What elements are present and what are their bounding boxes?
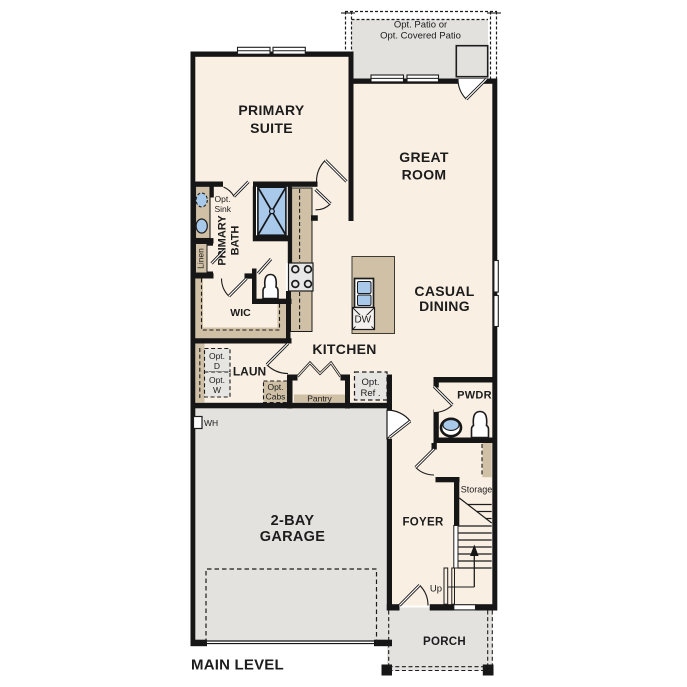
- svg-text:Opt. Covered Patio: Opt. Covered Patio: [380, 31, 461, 42]
- svg-text:MAIN LEVEL: MAIN LEVEL: [191, 657, 284, 674]
- svg-text:SUITE: SUITE: [250, 120, 293, 136]
- svg-text:GREAT: GREAT: [399, 149, 449, 165]
- svg-text:LAUN: LAUN: [233, 365, 266, 379]
- svg-text:Pantry: Pantry: [307, 394, 332, 404]
- svg-text:Ref .: Ref .: [360, 388, 380, 399]
- svg-text:Linen: Linen: [196, 248, 206, 269]
- svg-text:PRIMARY: PRIMARY: [238, 102, 305, 118]
- svg-text:Opt.: Opt.: [362, 377, 380, 388]
- svg-text:Sink: Sink: [215, 204, 232, 214]
- svg-text:Opt.: Opt.: [215, 194, 231, 204]
- svg-text:Opt.: Opt.: [209, 351, 225, 361]
- svg-text:BATH: BATH: [230, 226, 242, 256]
- svg-text:DW: DW: [354, 315, 371, 326]
- svg-text:Cabs: Cabs: [266, 392, 286, 402]
- svg-text:2-BAY: 2-BAY: [271, 513, 315, 529]
- svg-text:Up: Up: [430, 584, 442, 595]
- svg-text:Opt.: Opt.: [267, 382, 283, 392]
- svg-text:W: W: [213, 385, 221, 395]
- svg-text:PORCH: PORCH: [423, 636, 466, 648]
- svg-text:D: D: [214, 361, 220, 371]
- svg-text:DINING: DINING: [419, 298, 470, 314]
- svg-text:ROOM: ROOM: [402, 167, 447, 183]
- svg-text:FOYER: FOYER: [402, 517, 444, 529]
- svg-text:WH: WH: [204, 418, 218, 428]
- svg-text:Opt.: Opt.: [209, 375, 225, 385]
- svg-text:GARAGE: GARAGE: [260, 529, 325, 545]
- svg-text:PWDR: PWDR: [457, 390, 492, 402]
- svg-text:Storage: Storage: [461, 485, 493, 495]
- svg-text:Opt. Patio or: Opt. Patio or: [394, 20, 447, 31]
- svg-text:WIC: WIC: [230, 307, 251, 319]
- svg-text:KITCHEN: KITCHEN: [312, 341, 376, 357]
- svg-text:CASUAL: CASUAL: [414, 283, 474, 299]
